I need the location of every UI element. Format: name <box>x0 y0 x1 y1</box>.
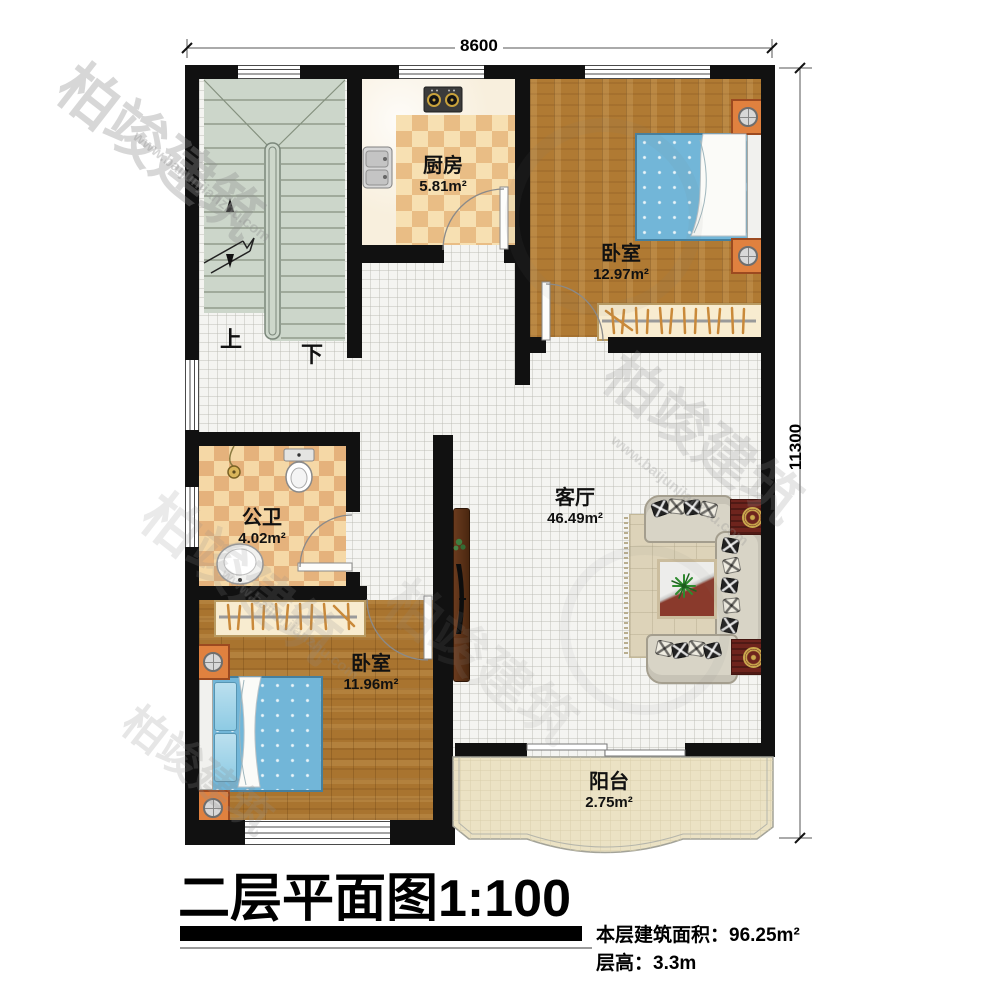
room-name: 客厅 <box>547 486 603 510</box>
bed-top-pillow <box>724 139 747 185</box>
stairs-up-label: 上 <box>220 322 242 354</box>
window <box>585 65 710 79</box>
room-area: 12.97m² <box>593 266 649 284</box>
wall-segment <box>347 65 362 358</box>
room-area: 4.02m² <box>238 530 286 548</box>
bed-bottom-pillow <box>214 682 237 731</box>
sofa-pillow <box>720 616 740 634</box>
window <box>185 360 199 430</box>
wall-segment <box>185 432 360 446</box>
wardrobe-bottom <box>214 600 366 637</box>
room-name: 厨房 <box>419 154 467 178</box>
wall-segment <box>530 337 546 353</box>
coffee-table <box>657 559 717 619</box>
lamp-icon <box>203 798 223 818</box>
stairwell-floor <box>204 79 345 313</box>
tv-cabinet <box>453 508 470 682</box>
room-label-bathroom: 公卫 4.02m² <box>238 506 286 548</box>
window <box>185 487 199 547</box>
table-medallion-icon <box>742 507 763 528</box>
wall-segment <box>185 65 199 845</box>
room-area: 2.75m² <box>585 794 633 812</box>
window <box>245 820 390 845</box>
room-label-kitchen: 厨房 5.81m² <box>419 154 467 196</box>
sofa-pillow <box>722 597 740 614</box>
info-floor-height: 层高：3.3m <box>596 948 696 975</box>
wall-segment <box>455 743 527 757</box>
title-underline-bar <box>180 926 582 941</box>
floor-plan-canvas: 厨房 5.81m² 卧室 12.97m² 公卫 4.02m² 卧室 11.96m… <box>0 0 1000 990</box>
title-underline-thin <box>180 947 592 949</box>
room-name: 卧室 <box>343 652 398 676</box>
wall-segment <box>608 337 761 353</box>
room-label-living: 客厅 46.49m² <box>547 486 603 528</box>
nightstand <box>731 99 765 135</box>
nightstand <box>196 644 230 680</box>
room-area: 5.81m² <box>419 178 467 196</box>
bed-bottom-pillow <box>214 733 237 782</box>
wall-segment <box>433 435 453 845</box>
window <box>399 65 484 79</box>
bed-top-headboard <box>747 133 762 239</box>
room-label-bedroom-top: 卧室 12.97m² <box>593 242 649 284</box>
wall-segment <box>761 65 775 757</box>
lamp-icon <box>738 107 758 127</box>
plan-title-text: 二层平面图 <box>178 870 438 928</box>
wall-segment <box>515 65 530 385</box>
rug-fringe <box>624 516 628 654</box>
dimension-right-label: 11300 <box>786 411 806 483</box>
sofa-pillow <box>721 537 740 555</box>
bed-bottom-headboard <box>199 676 213 790</box>
dimension-top-label: 8600 <box>455 36 503 56</box>
nightstand <box>731 238 765 274</box>
room-label-balcony: 阳台 2.75m² <box>585 770 633 812</box>
room-name: 公卫 <box>238 506 286 530</box>
room-name: 卧室 <box>593 242 649 266</box>
info-floor-area: 本层建筑面积：96.25m² <box>596 920 800 947</box>
lamp-icon <box>738 246 758 266</box>
room-label-bedroom-bottom: 卧室 11.96m² <box>343 652 398 694</box>
plan-scale: 1:100 <box>438 870 571 928</box>
wall-segment <box>685 743 775 757</box>
room-name: 阳台 <box>585 770 633 794</box>
wardrobe-top <box>597 303 765 341</box>
wall-segment <box>346 432 360 512</box>
bed-top-pillow <box>724 189 747 235</box>
window <box>238 65 300 79</box>
sofa-pillow <box>720 577 739 594</box>
stairs-down-label: 下 <box>301 337 323 369</box>
room-area: 11.96m² <box>343 676 398 694</box>
lamp-icon <box>203 652 223 672</box>
wall-segment <box>362 245 444 263</box>
plan-title: 二层平面图1:100 <box>178 856 571 931</box>
room-area: 46.49m² <box>547 510 603 528</box>
wall-segment <box>185 586 367 600</box>
